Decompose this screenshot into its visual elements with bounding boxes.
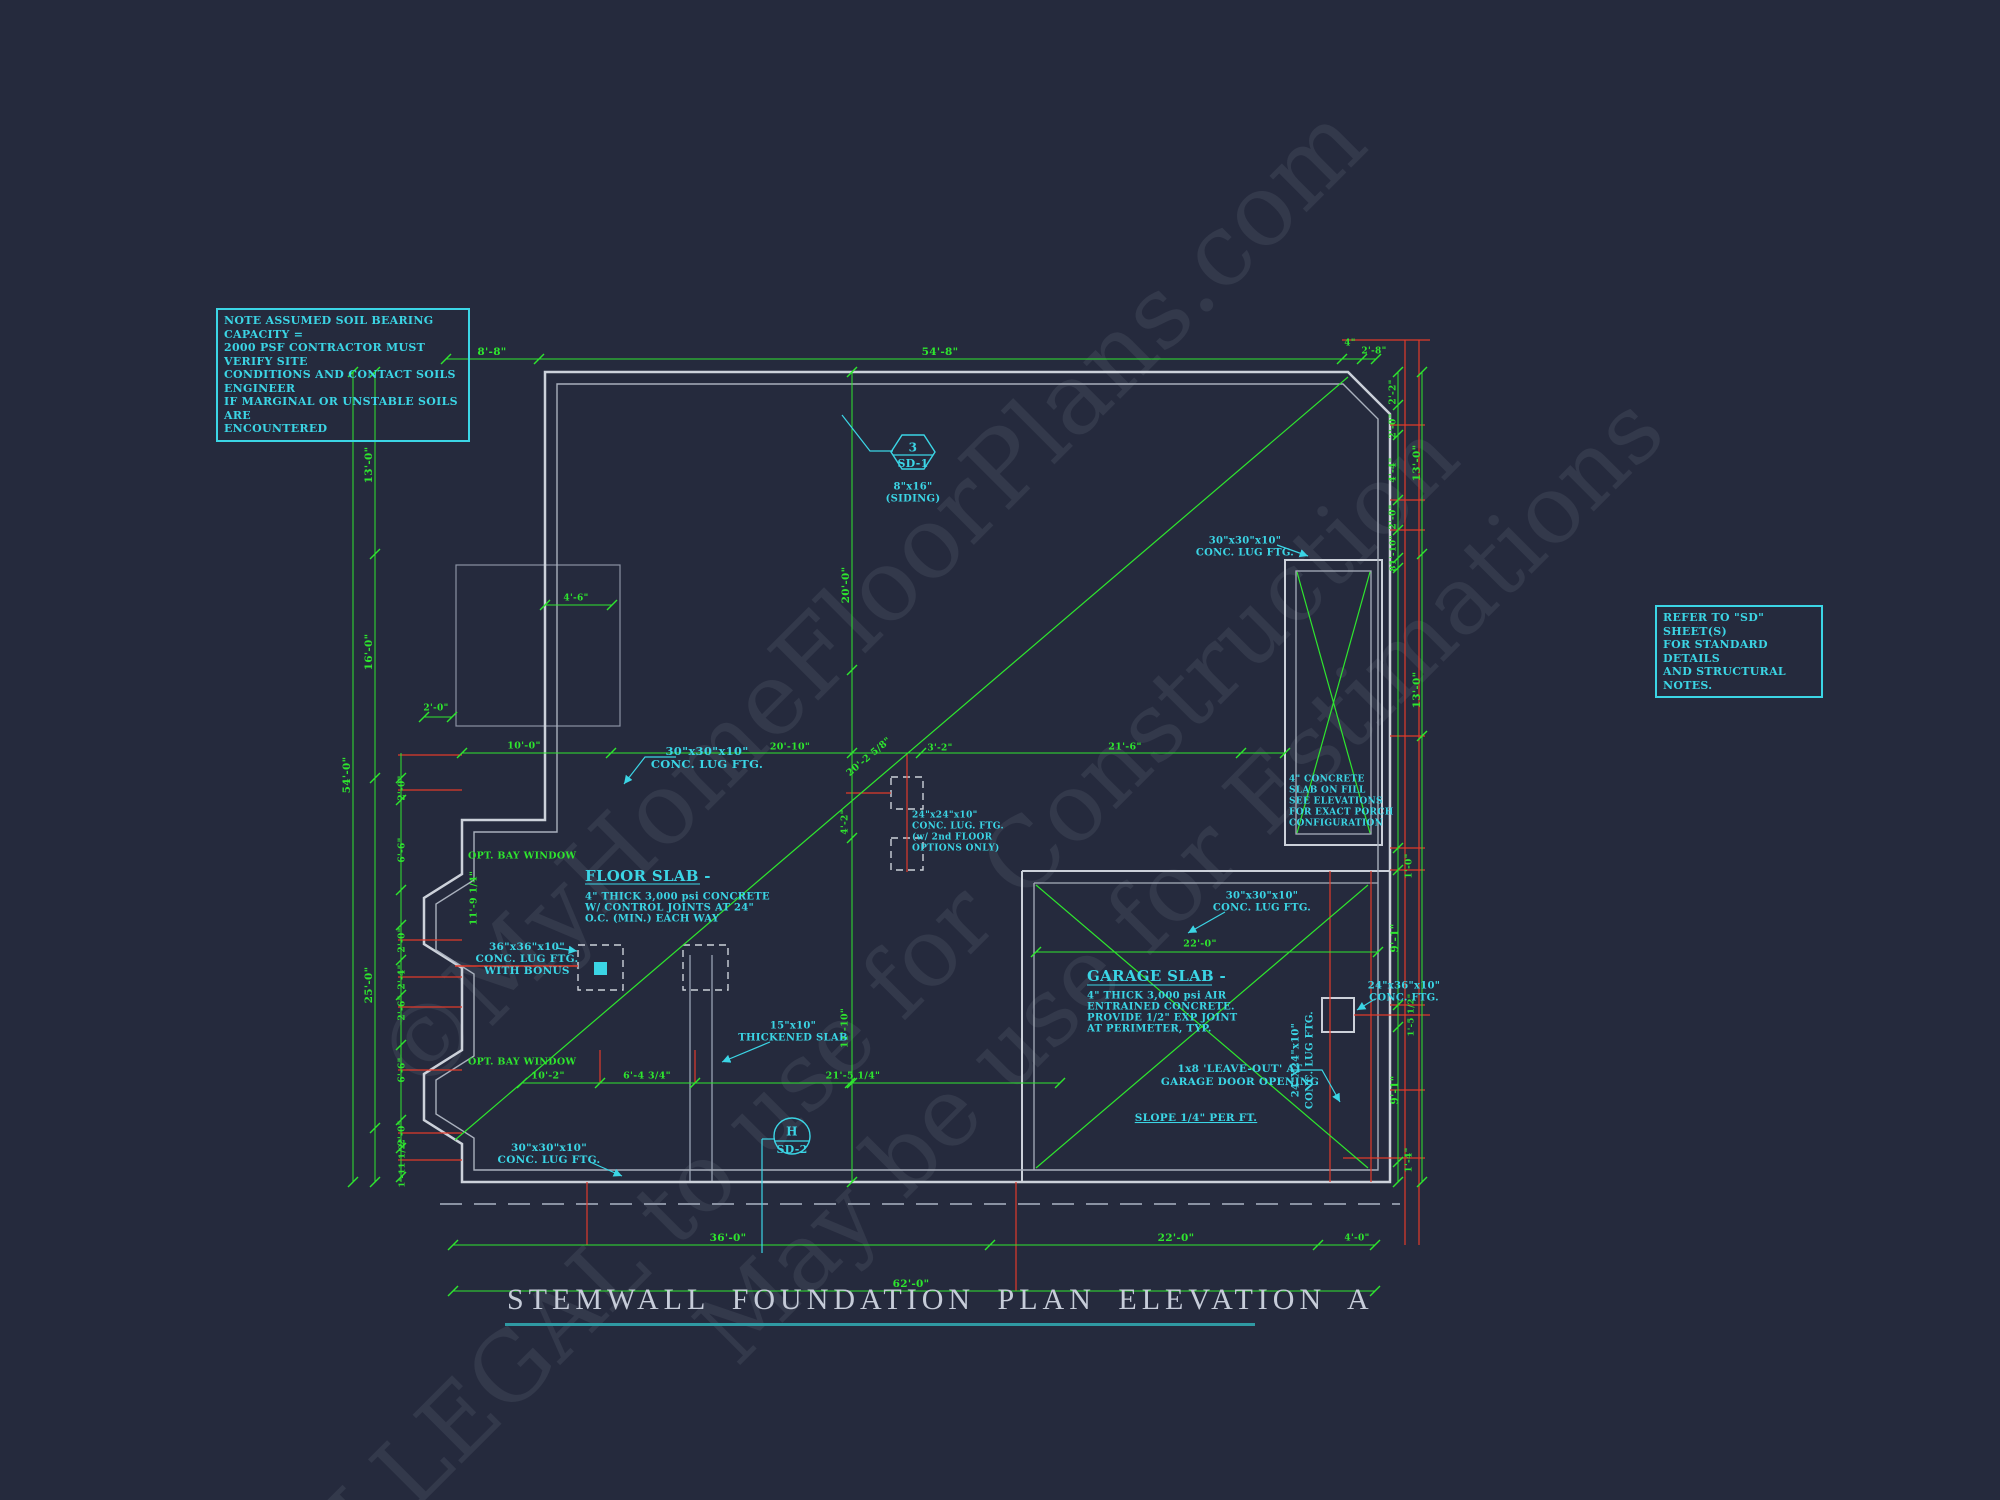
dimension-label: 54'-0" (341, 757, 353, 794)
dimension-label: 2'-0" (423, 704, 448, 714)
callout-label: OPTIONS ONLY) (912, 843, 1000, 854)
foundation-plan-drawing: 8'-8"54'-8"4"2'-8"54'-0"13'-0"16'-0"25'-… (0, 0, 2000, 1500)
callout-label: 15"x10" (770, 1021, 816, 1032)
callout-label: 4" CONCRETE (1289, 775, 1365, 785)
callout-label: AT PERIMETER, TYP. (1086, 1024, 1212, 1035)
dimension-label: 21'-5 1/4" (826, 1071, 881, 1082)
callout-label: CONC. LUG FTG. (1196, 548, 1294, 559)
callout-label: PROVIDE 1/2" EXP JOINT (1087, 1013, 1238, 1024)
callout-label: (SIDING) (886, 494, 941, 505)
dimension-label: 2'-8" (1361, 347, 1386, 357)
callout-label: CONC. LUG. FTG. (912, 822, 1004, 832)
dimension-label: 13'-0" (363, 447, 375, 484)
callout-label: SD-2 (776, 1143, 807, 1156)
dimension-label: OPT. BAY WINDOW (468, 851, 576, 862)
callout-leader (722, 1042, 770, 1062)
dimension-label: 4'-0" (1344, 1234, 1369, 1244)
dimension-label: OPT. BAY WINDOW (468, 1057, 576, 1068)
callout-label: CONC. LUG FTG. (1305, 1011, 1316, 1109)
dimension-label: 8'-8" (477, 346, 506, 358)
dimension-label: 10'-2" (531, 1071, 564, 1082)
dimension-label: 22'-0" (1183, 939, 1216, 950)
dimension-label: 11'-9 1/4" (469, 871, 480, 926)
callout-label: FLOOR SLAB - (585, 867, 711, 885)
dimension-label: 2'-0" (1389, 504, 1399, 529)
dimension-label: 4'-6" (563, 594, 588, 604)
dimension-label: 1'-4" (1405, 1147, 1415, 1172)
callout-label: CONC. FTG. (1369, 993, 1439, 1004)
callout-label: 36"x36"x10" (489, 941, 565, 953)
callout-label: CONC. LUG FTG. (476, 953, 579, 965)
callout-label: (w/ 2nd FLOOR (912, 832, 993, 843)
dimension-label: 6'-6" (398, 1057, 408, 1082)
dimension-label: 36'-0" (710, 1232, 747, 1244)
callout-label: SEE ELEVATIONS (1289, 797, 1383, 807)
dimension-label: 13'-0" (1411, 445, 1423, 482)
callout-label: CONC. LUG FTG. (651, 757, 763, 771)
dimension-label: 4'-4" (1389, 457, 1399, 482)
footing-pad (456, 565, 620, 726)
text-layer: 8'-8"54'-8"4"2'-8"54'-0"13'-0"16'-0"25'-… (341, 339, 1440, 1291)
dimension-label: 2'-0" (398, 775, 408, 800)
callout-label: SLOPE 1/4" PER FT. (1135, 1112, 1258, 1124)
callout-label: 30"x30"x10" (666, 744, 749, 758)
callout-label: 30"x30"x10" (511, 1142, 587, 1154)
soil-bearing-note: NOTE ASSUMED SOIL BEARING CAPACITY = 200… (216, 308, 470, 442)
dimension-label: 21'-6" (1108, 742, 1141, 753)
callout-label: ENTRAINED CONCRETE. (1087, 1002, 1235, 1013)
dimension-label: 20'-0" (840, 567, 852, 604)
dimension-label: 8" (1389, 561, 1399, 572)
callout-label: H (786, 1125, 798, 1139)
sd-reference-note: REFER TO "SD" SHEET(S) FOR STANDARD DETA… (1655, 605, 1823, 698)
dimension-label: 2'-6" (398, 995, 408, 1020)
dimension-label: 22'-0" (1158, 1232, 1195, 1244)
callout-leader (842, 415, 893, 451)
callout-label: CONFIGURATION (1289, 819, 1383, 829)
dimension-label: 9'-1" (1389, 923, 1401, 952)
callout-label: WITH BONUS (483, 965, 570, 977)
dimension-label: 2'-4" (398, 964, 408, 989)
dimension-label: 13'-0" (1411, 672, 1423, 709)
callout-label: 24"x36"x10" (1368, 981, 1441, 992)
dimension-label: 4" (1344, 339, 1356, 349)
dimension-label: 10'-0" (507, 741, 540, 752)
callout-label: THICKENED SLAB (738, 1033, 847, 1044)
callout-label: SLAB ON FILL (1289, 786, 1366, 796)
dimension-label: 9'-1" (1389, 1075, 1401, 1104)
callout-label: GARAGE DOOR OPENING (1161, 1076, 1319, 1088)
callout-label: 30"x30"x10" (1209, 536, 1282, 547)
dimension-label: 2'-0" (398, 927, 408, 952)
footing-pad-filled (594, 962, 607, 975)
callout-label: O.C. (MIN.) EACH WAY (585, 914, 720, 925)
dimension-label: 4'-2" (841, 809, 851, 834)
plan-title: STEMWALL FOUNDATION PLAN ELEVATION A (507, 1283, 1374, 1317)
callout-label: 30"x30"x10" (1226, 891, 1299, 902)
title-underline (505, 1323, 1255, 1326)
callout-label: 1x8 'LEAVE-OUT' AT (1178, 1063, 1303, 1075)
dimension-label: 6'-6" (398, 837, 408, 862)
callout-label: 8"x16" (893, 482, 932, 493)
dimension-label: 54'-8" (922, 346, 959, 358)
footing-pad (1322, 998, 1354, 1032)
dimension-label: 1'-11 1/2" (398, 1138, 408, 1187)
blueprint-canvas: ©MyHomeFloorPlans.com ILLEGAL to use for… (0, 0, 2000, 1500)
dimension-label: 20'-10" (770, 742, 810, 753)
dimension-label: 3'-2" (927, 744, 952, 754)
callout-label: 3 (909, 441, 918, 455)
callout-label: FOR EXACT PORCH (1289, 808, 1394, 818)
callout-leader (1188, 912, 1225, 933)
dimension-label: 6'-4 3/4" (623, 1071, 671, 1082)
callout-label: 4" THICK 3,000 psi AIR (1087, 991, 1227, 1002)
callout-label: 24"x24"x10" (912, 811, 978, 821)
callout-label: CONC. LUG FTG. (1213, 903, 1311, 914)
callout-label: SD-1 (897, 457, 928, 470)
callout-label: W/ CONTROL JOINTS AT 24" (584, 903, 754, 914)
callout-label: 4" THICK 3,000 psi CONCRETE (585, 892, 770, 903)
dimension-label: 2'-2" (1389, 379, 1399, 404)
dimension-label: 25'-0" (363, 967, 375, 1004)
callout-label: GARAGE SLAB - (1087, 967, 1226, 985)
dimension-label: 16'-0" (363, 634, 375, 671)
dimension-label: 1'-0" (1405, 853, 1415, 878)
dimension-label: 2'-0" (1389, 413, 1399, 438)
callout-label: CONC. LUG FTG. (498, 1154, 601, 1166)
